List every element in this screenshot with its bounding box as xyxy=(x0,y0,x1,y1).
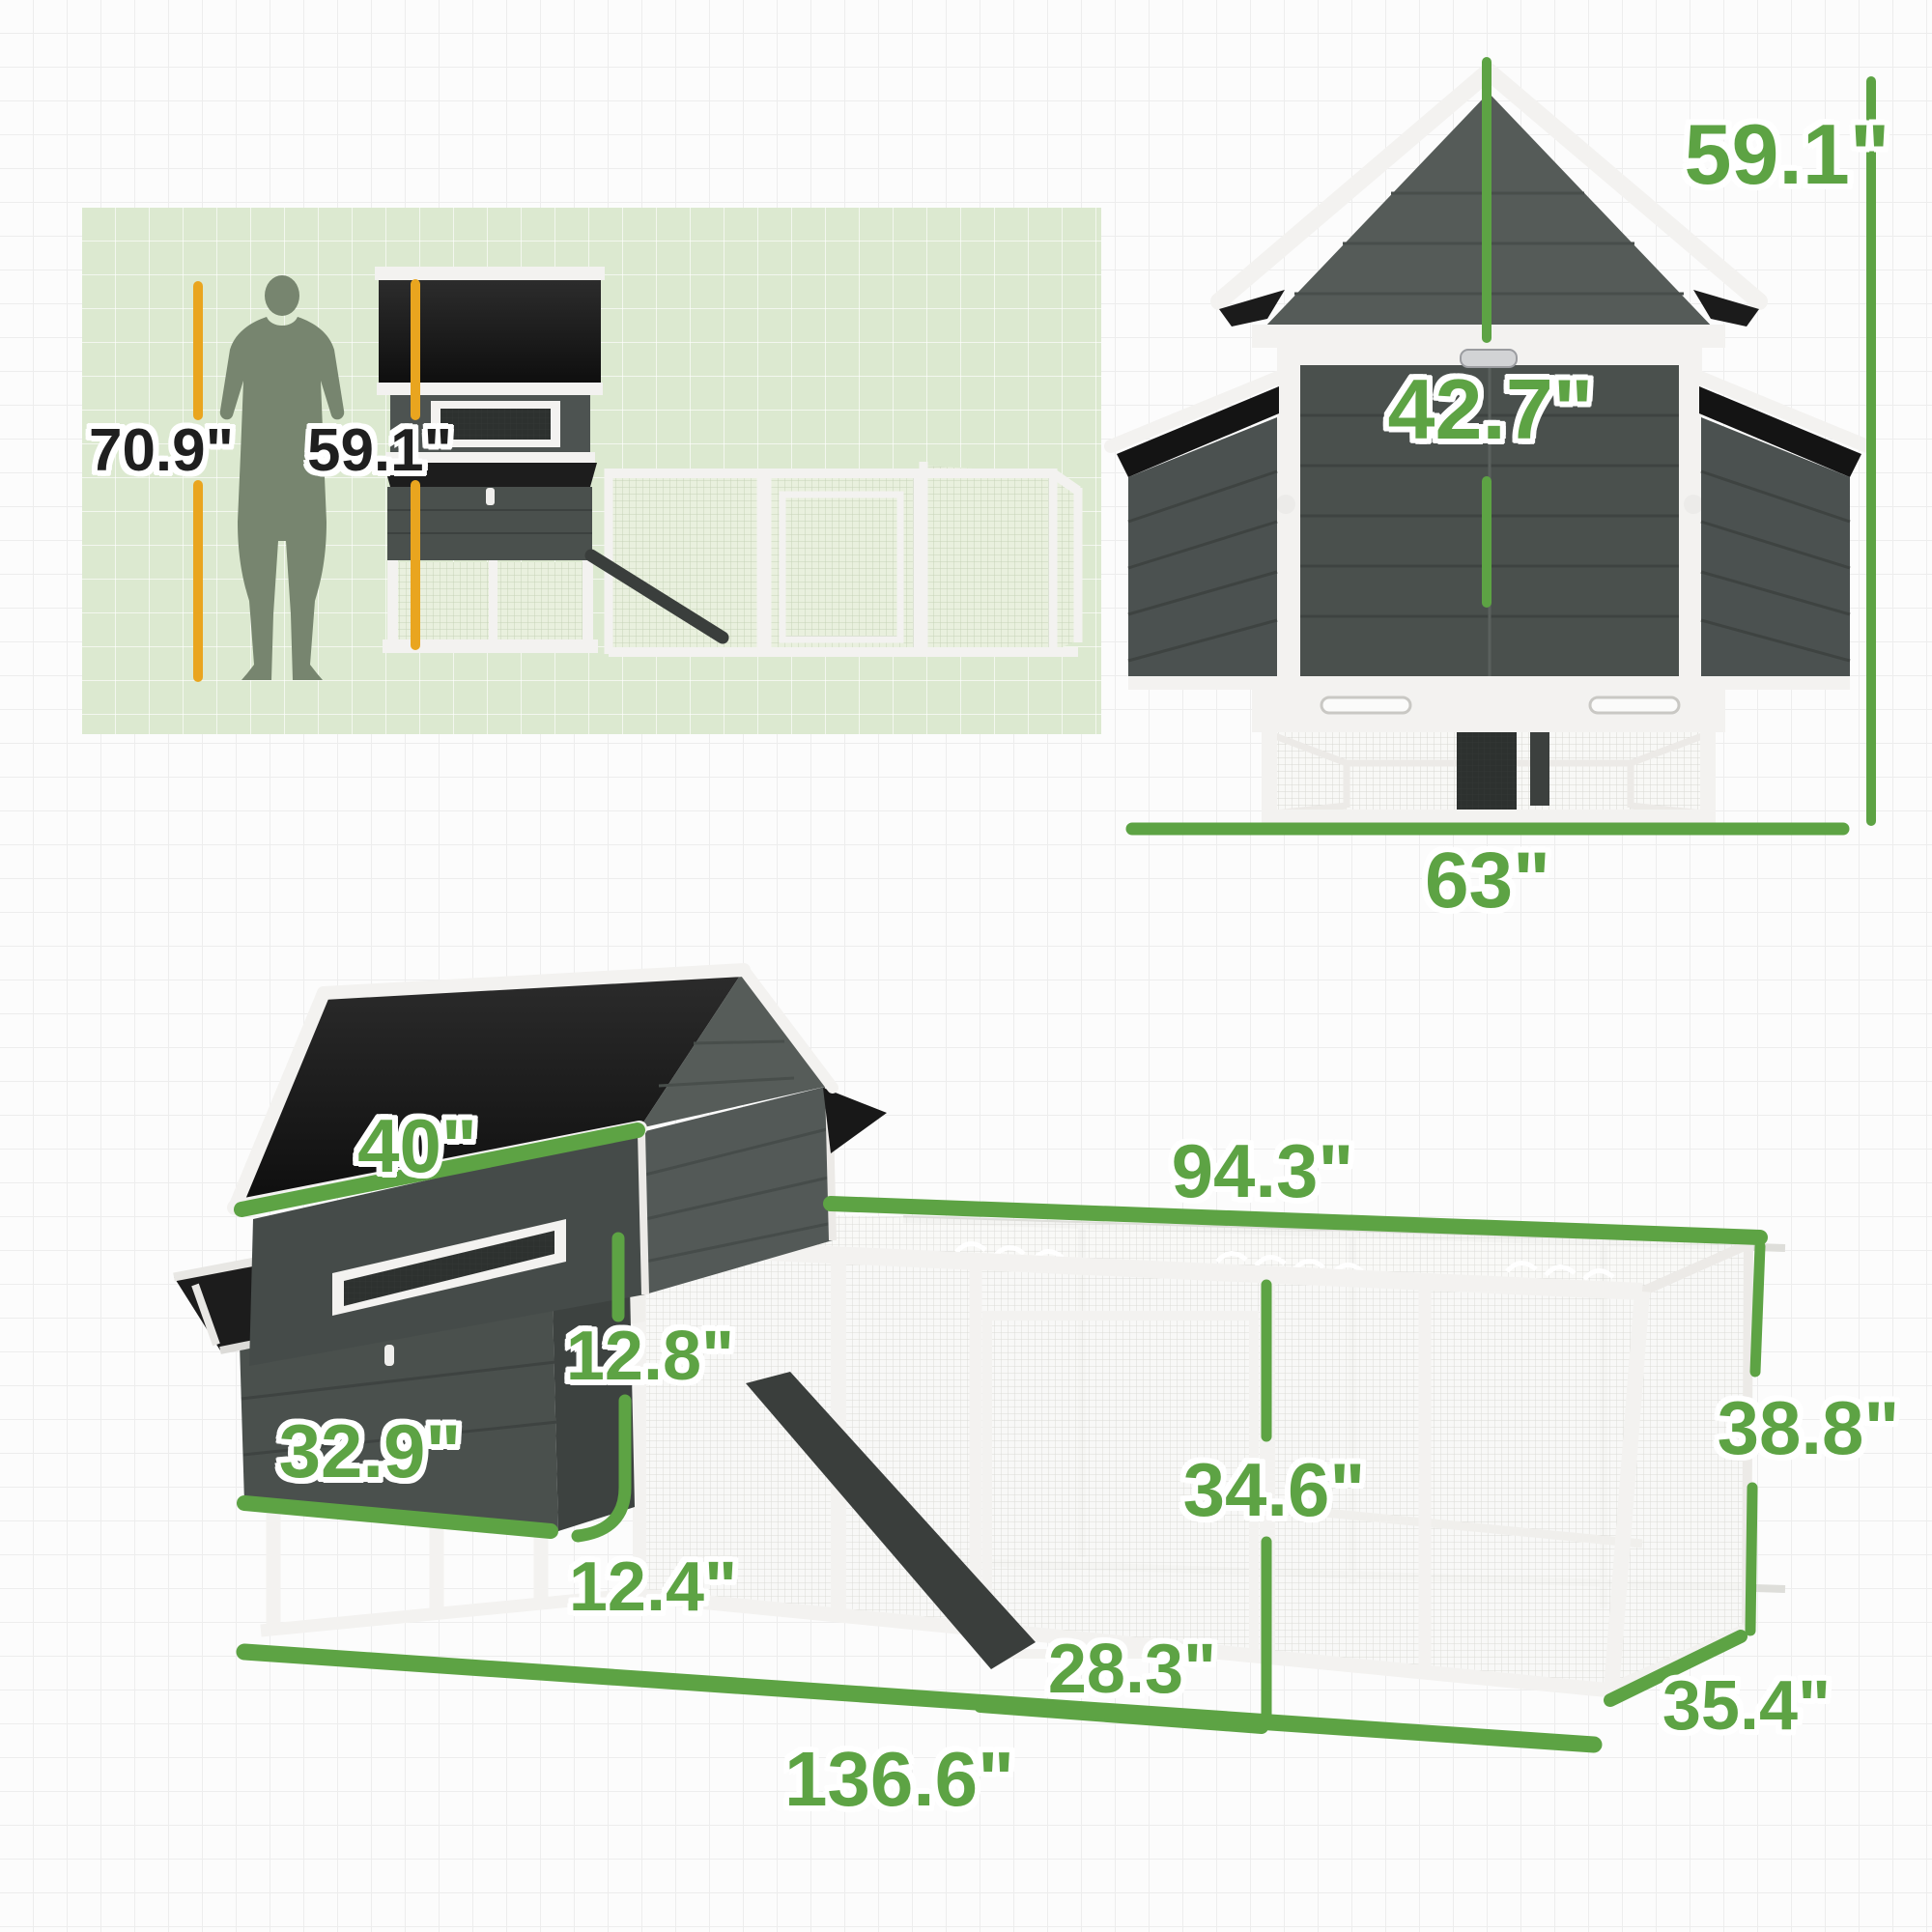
run-height-line-bottom xyxy=(1750,1488,1752,1631)
panel-run xyxy=(591,462,1078,654)
diagram-stage: 70.9" 59.1" 59.1" 42.7" 63" 40" 94.3" 12… xyxy=(0,0,1932,1932)
nestbox-clearance-label: 12.4" xyxy=(569,1552,737,1622)
depth-label: 35.4" xyxy=(1662,1671,1831,1741)
front-run-ramp xyxy=(1457,732,1517,811)
front-run xyxy=(1262,730,1716,823)
panel-coop-window xyxy=(440,409,551,440)
panel-nestbox-latch xyxy=(486,488,495,505)
nestbox-height-label: 12.8" xyxy=(566,1321,734,1391)
front-pivot-right xyxy=(1684,495,1703,514)
front-inner-height-label: 42.7" xyxy=(1388,367,1594,452)
front-total-height-label: 59.1" xyxy=(1685,112,1890,197)
front-handle-right xyxy=(1590,697,1679,713)
total-length-label: 136.6" xyxy=(784,1741,1014,1818)
door-width-label: 28.3" xyxy=(1048,1634,1216,1704)
front-pivot-left xyxy=(1276,495,1295,514)
nestbox-width-label: 32.9" xyxy=(279,1413,462,1489)
coop-height-label: 59.1" xyxy=(307,421,452,481)
front-nestbox-left xyxy=(1111,375,1285,690)
roof-width-label: 40" xyxy=(357,1108,477,1183)
run-inner-height-label: 34.6" xyxy=(1183,1452,1366,1527)
panel-coop-illustration xyxy=(375,267,1078,654)
run-height-label: 38.8" xyxy=(1718,1390,1900,1465)
front-nestbox-right xyxy=(1693,375,1867,690)
run-top-length-label: 94.3" xyxy=(1172,1133,1354,1208)
run-height-line-top xyxy=(1755,1246,1760,1372)
panel-coop-roof-trim xyxy=(375,267,605,280)
perspective-view-illustration xyxy=(174,970,1785,1690)
far-nestbox-roof xyxy=(823,1088,887,1153)
front-width-label: 63" xyxy=(1425,841,1550,921)
illustration-layer xyxy=(0,0,1932,1932)
human-height-label: 70.9" xyxy=(89,421,234,481)
front-handle-left xyxy=(1321,697,1410,713)
